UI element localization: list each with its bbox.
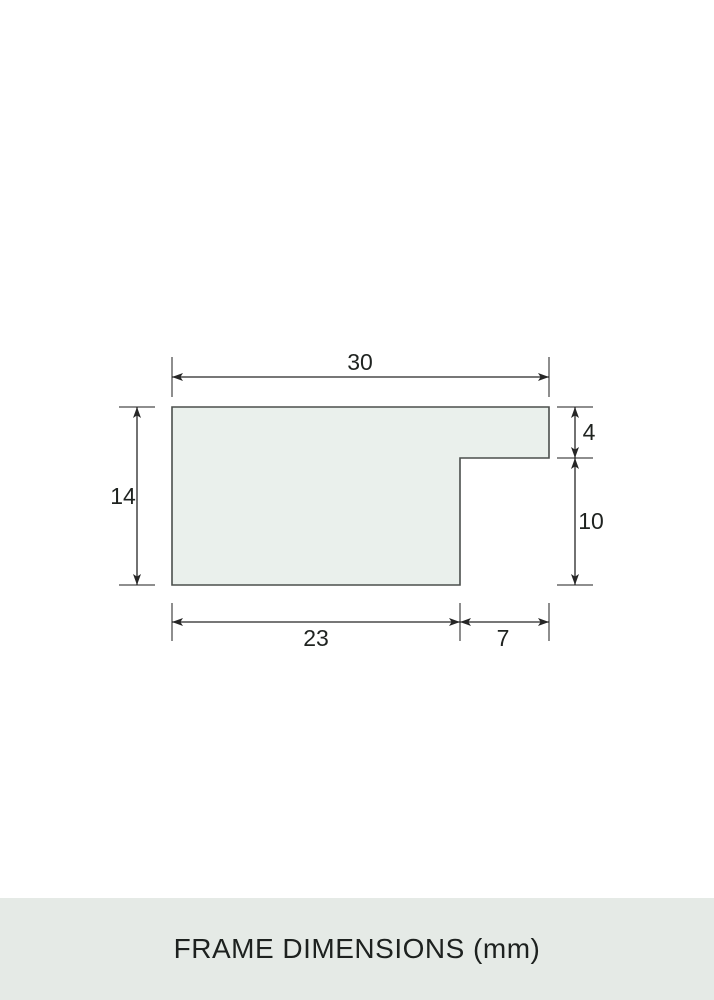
rabbet-width-label: 7 bbox=[497, 625, 510, 651]
dimension-overall-height: 14 bbox=[110, 407, 155, 585]
page: 30 14 4 10 bbox=[0, 0, 714, 1000]
body-width-label: 23 bbox=[303, 625, 329, 651]
rabbet-height-label: 10 bbox=[578, 508, 604, 534]
overall-width-label: 30 bbox=[347, 349, 373, 375]
dimension-overall-width: 30 bbox=[172, 349, 549, 397]
overall-height-label: 14 bbox=[110, 483, 136, 509]
diagram-canvas: 30 14 4 10 bbox=[0, 0, 714, 898]
frame-profile-shape bbox=[172, 407, 549, 585]
dimension-rabbet-width: 7 bbox=[460, 603, 549, 651]
dimension-front-lip-height: 4 bbox=[557, 407, 596, 458]
front-lip-height-label: 4 bbox=[583, 419, 596, 445]
frame-profile-diagram: 30 14 4 10 bbox=[0, 0, 714, 898]
dimension-body-width: 23 bbox=[172, 603, 460, 651]
dimension-rabbet-height: 10 bbox=[557, 458, 604, 585]
page-title: FRAME DIMENSIONS (mm) bbox=[174, 933, 541, 965]
title-banner: FRAME DIMENSIONS (mm) bbox=[0, 898, 714, 1000]
